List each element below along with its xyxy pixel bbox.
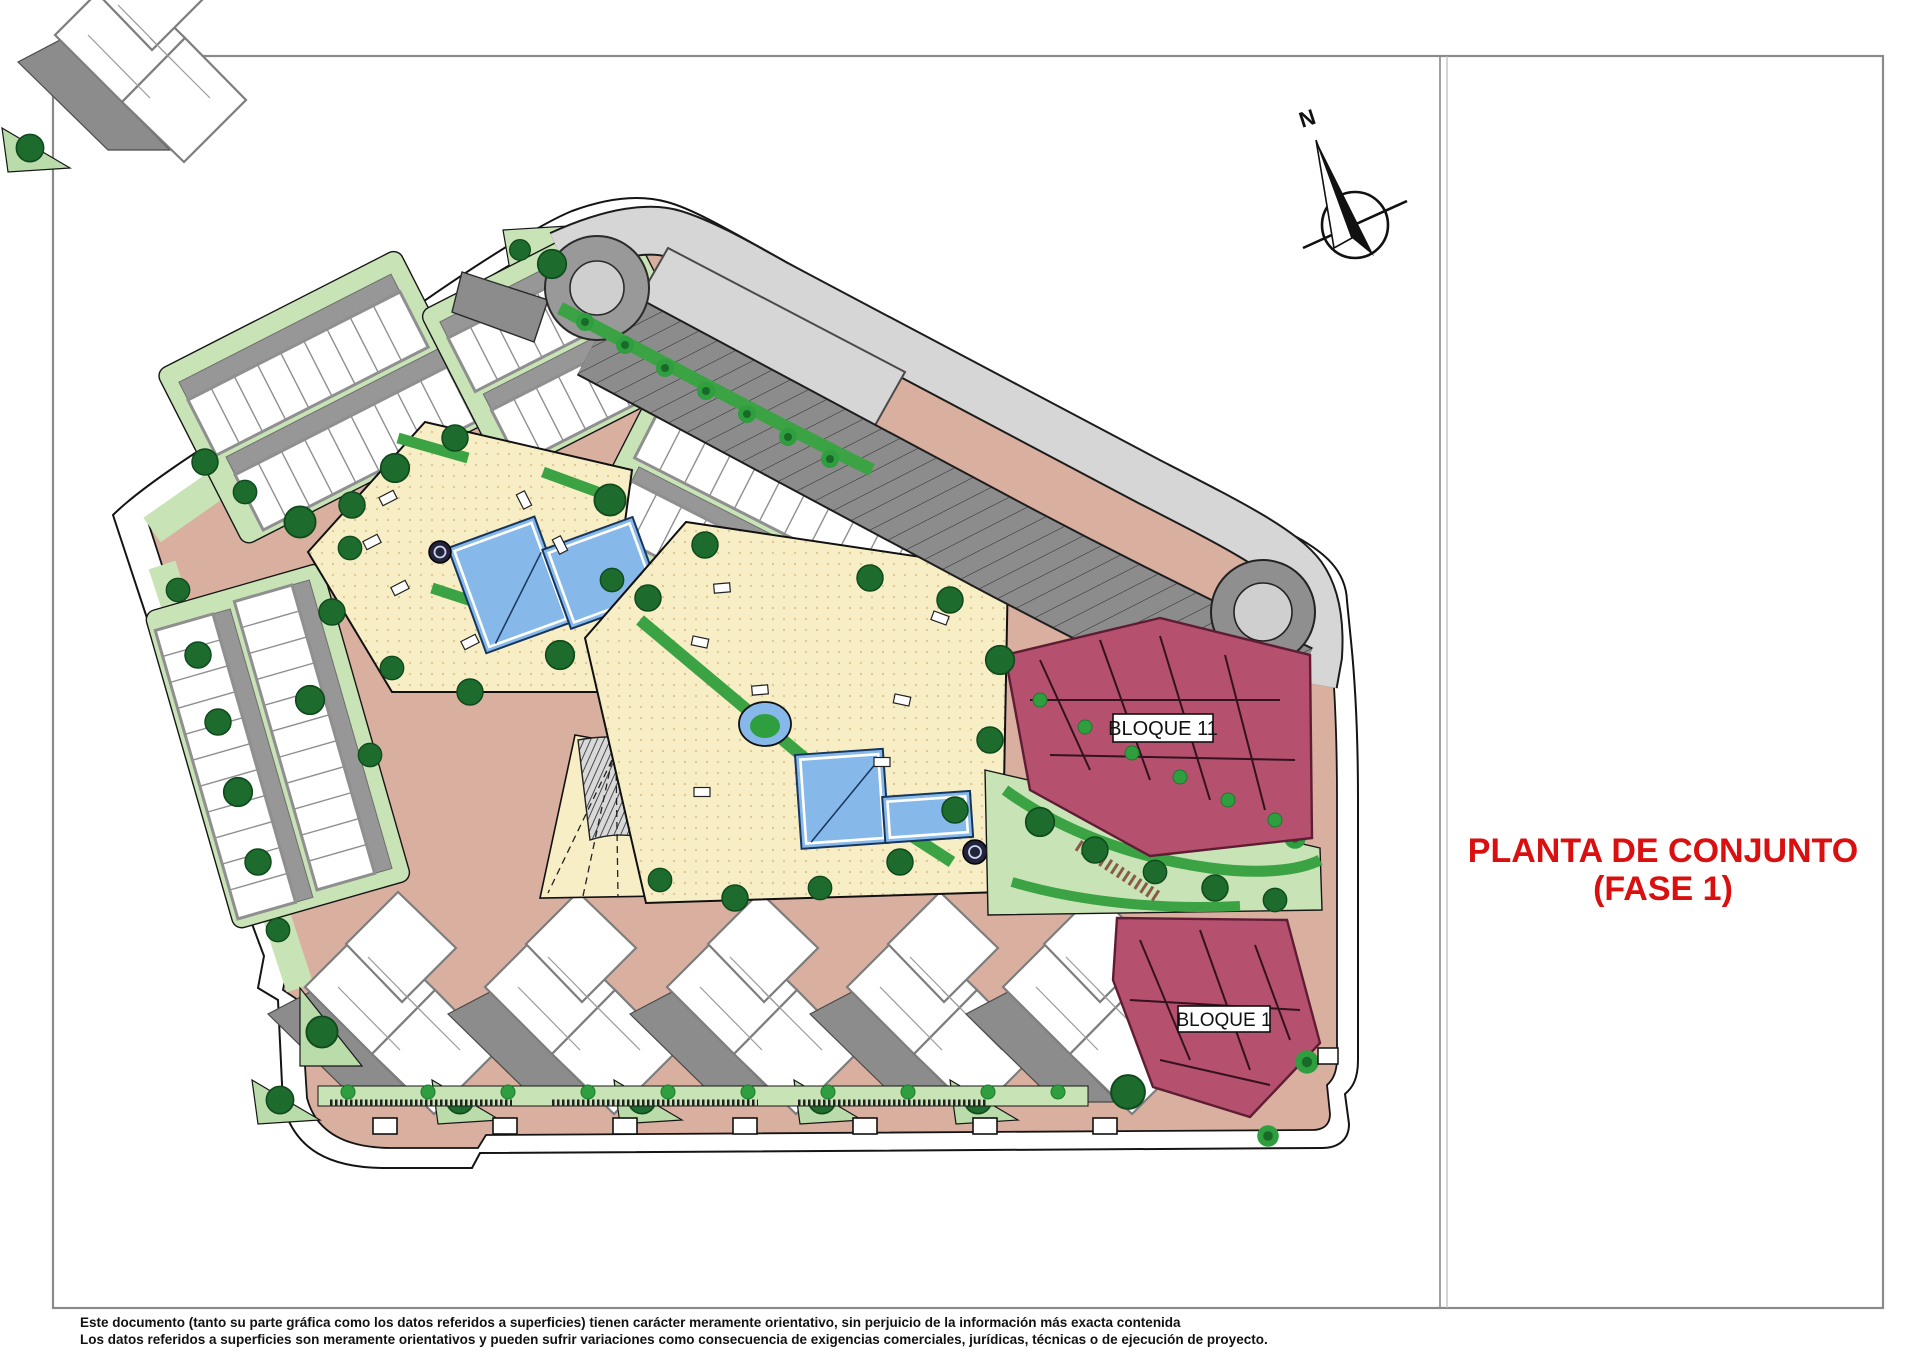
site-plan-svg: BLOQUE 11 BLOQUE 1 N PLANTA DE CONJUNTO … [0,0,1920,1357]
compass-north-label: N [1296,104,1319,133]
bloque-11-label: BLOQUE 11 [1108,718,1218,740]
plan-subtitle: (FASE 1) [1593,870,1733,908]
title-panel: PLANTA DE CONJUNTO (FASE 1) [1468,832,1858,908]
compass-icon: N [1296,104,1407,258]
disclaimer: Este documento (tanto su parte gráfica c… [80,1315,1268,1347]
drawing-sheet: BLOQUE 11 BLOQUE 1 N PLANTA DE CONJUNTO … [0,0,1920,1357]
pool-area-central [585,522,1008,903]
plan-title: PLANTA DE CONJUNTO [1468,832,1858,870]
disclaimer-line-2: Los datos referidos a superficies son me… [80,1332,1268,1347]
disclaimer-line-1: Este documento (tanto su parte gráfica c… [80,1315,1181,1330]
bloque-1-label: BLOQUE 1 [1176,1010,1271,1031]
